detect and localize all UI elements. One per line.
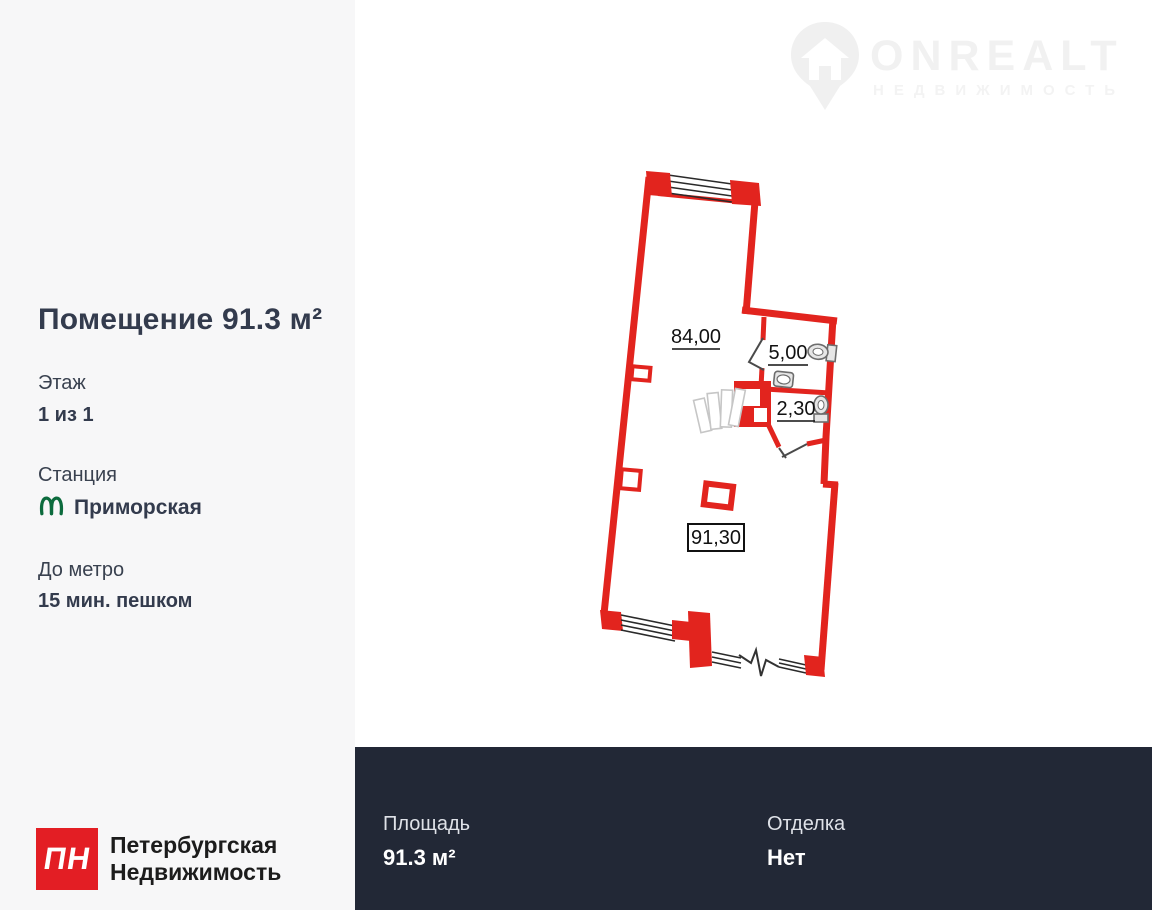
toilet-icon-wc2 xyxy=(814,396,828,422)
sidebar: Помещение 91.3 м² Этаж 1 из 1 Станция Пр… xyxy=(0,0,355,910)
summary-bar: Площадь 91.3 м² Отделка Нет xyxy=(355,747,1152,910)
plan-column xyxy=(704,483,733,507)
total-area-box: 91,30 xyxy=(688,524,744,551)
floorplan-panel: ONREALT НЕДВИЖИМОСТЬ xyxy=(355,0,1152,748)
finish-label: Отделка xyxy=(767,813,845,836)
page-title: Помещение 91.3 м² xyxy=(38,303,322,337)
plan-bottom-wall xyxy=(600,610,825,677)
room-label-wc1: 5,00 xyxy=(769,342,808,364)
room-label-main: 84,00 xyxy=(671,326,721,348)
agency-badge-letters: ПН xyxy=(41,841,93,877)
total-area-label: 91,30 xyxy=(691,527,741,549)
station-label: Станция xyxy=(38,464,117,487)
floorplan-drawing: 84,00 5,00 2,30 91,30 xyxy=(355,0,1152,748)
plan-interior-walls xyxy=(761,317,830,447)
agency-name-line2: Недвижимость xyxy=(110,859,281,886)
summary-area: Площадь 91.3 м² xyxy=(383,813,470,871)
summary-finish: Отделка Нет xyxy=(767,813,845,871)
toilet-icon-wc1 xyxy=(807,343,837,362)
plan-room-labels: 84,00 5,00 2,30 91,30 xyxy=(671,326,816,551)
floor-value: 1 из 1 xyxy=(38,404,94,427)
station-value: Приморская xyxy=(74,496,202,520)
finish-value: Нет xyxy=(767,845,845,871)
agency-logo: ПН Петербургская Недвижимость xyxy=(36,828,281,890)
agency-name-line1: Петербургская xyxy=(110,832,281,859)
plan-top-window xyxy=(646,171,761,206)
agency-name: Петербургская Недвижимость xyxy=(110,832,281,886)
floor-label: Этаж xyxy=(38,372,86,395)
station-row: Приморская xyxy=(38,492,202,523)
metro-time-label: До метро xyxy=(38,559,124,582)
area-value: 91.3 м² xyxy=(383,845,470,871)
area-label: Площадь xyxy=(383,813,470,836)
metro-logo-icon xyxy=(38,492,65,523)
agency-badge-icon: ПН xyxy=(36,828,98,890)
plan-closet-sketch xyxy=(694,388,746,432)
sink-icon xyxy=(773,371,793,388)
metro-time-value: 15 мин. пешком xyxy=(38,590,192,613)
room-label-wc2: 2,30 xyxy=(777,398,816,420)
